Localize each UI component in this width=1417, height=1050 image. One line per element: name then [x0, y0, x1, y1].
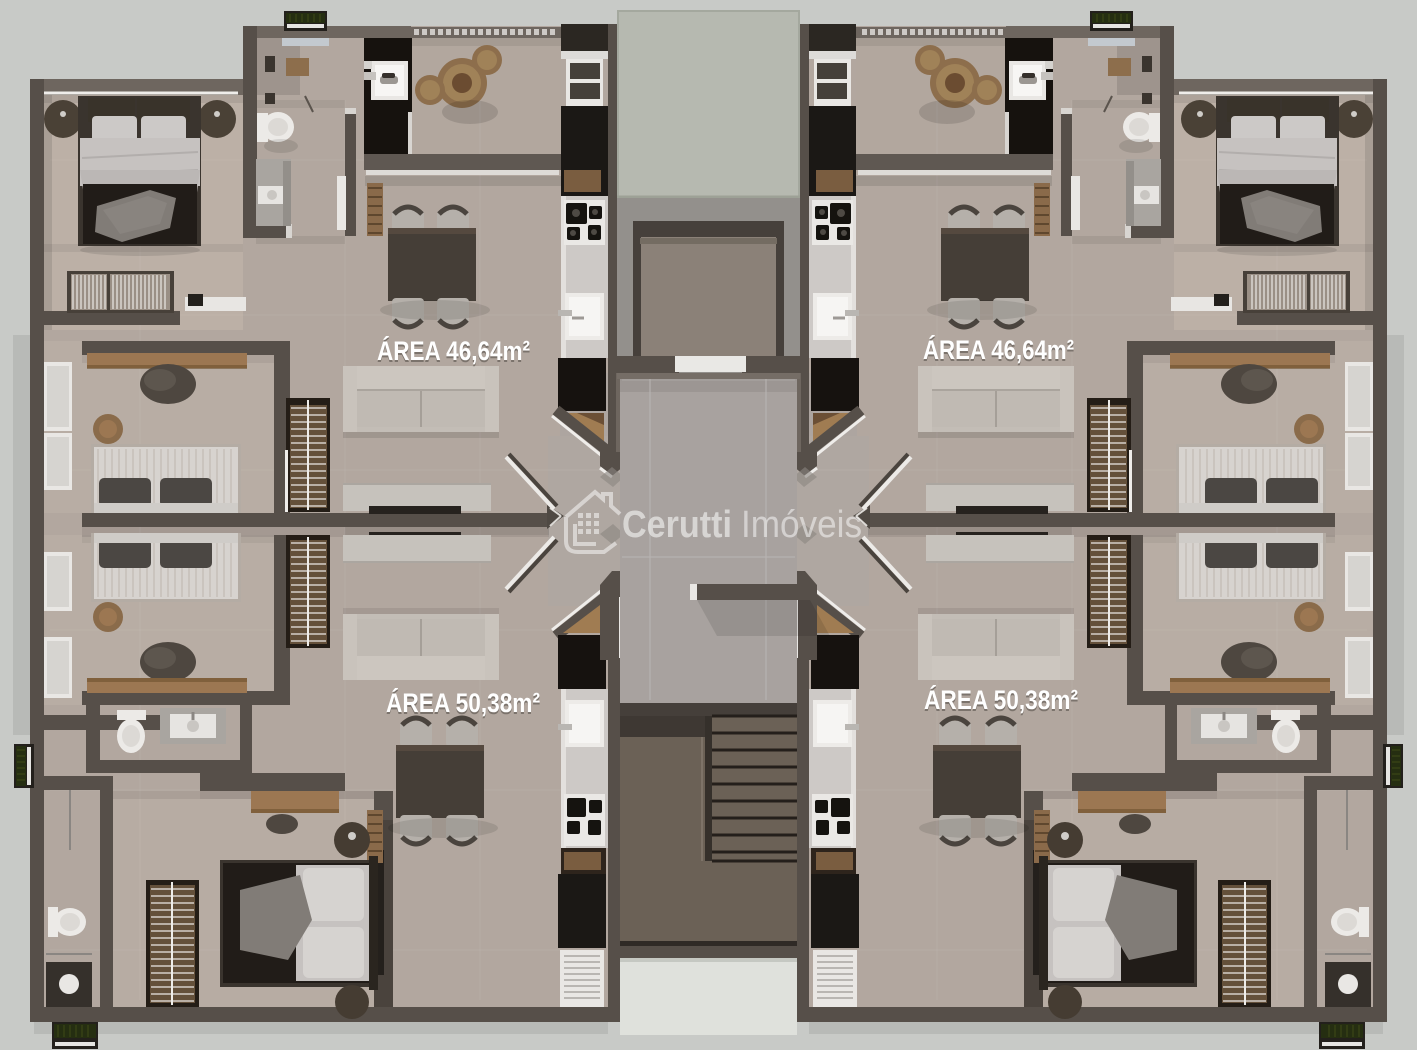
svg-text:ÁREA 46,64m²: ÁREA 46,64m²	[377, 335, 530, 366]
svg-text:Cerutti: Cerutti	[622, 504, 732, 546]
svg-text:Imóveis: Imóveis	[741, 504, 862, 546]
svg-text:ÁREA 50,38m²: ÁREA 50,38m²	[386, 687, 540, 718]
svg-text:ÁREA 50,38m²: ÁREA 50,38m²	[924, 684, 1078, 715]
svg-text:ÁREA 46,64m²: ÁREA 46,64m²	[923, 334, 1074, 365]
